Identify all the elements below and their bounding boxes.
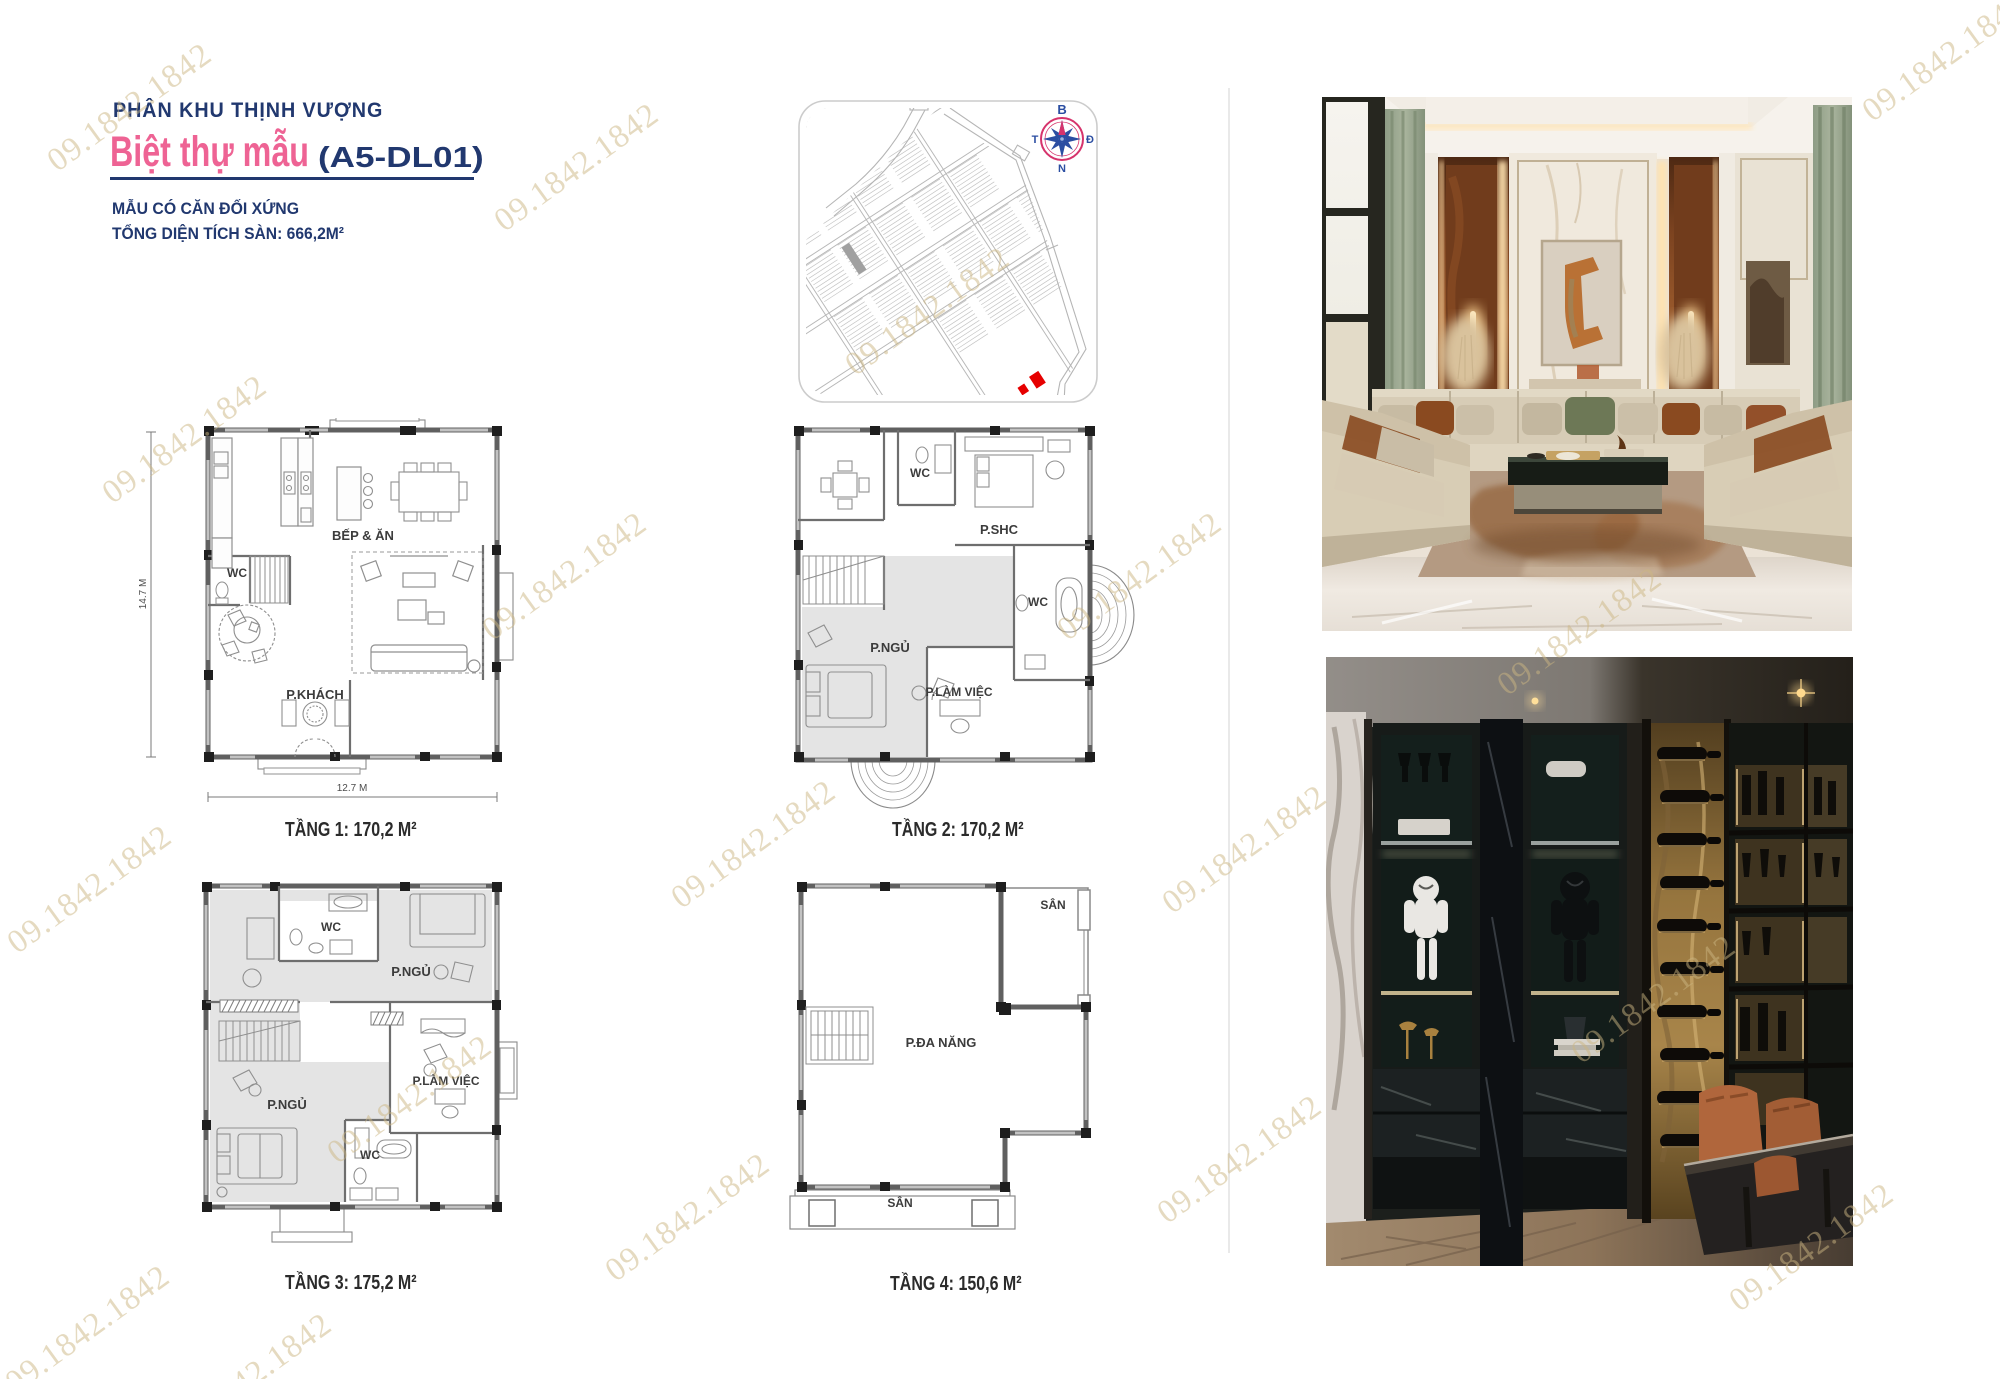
svg-text:WC: WC [1028,595,1048,609]
svg-text:WC: WC [910,466,930,480]
svg-text:12.7 M: 12.7 M [337,783,368,794]
svg-text:P.ĐA NĂNG: P.ĐA NĂNG [906,1035,977,1050]
svg-text:P.NGỦ: P.NGỦ [391,964,431,979]
svg-text:BẾP & ĂN: BẾP & ĂN [332,528,394,543]
svg-text:N: N [1058,163,1066,175]
svg-text:P.NGỦ: P.NGỦ [870,640,910,655]
svg-text:Đ: Đ [1086,134,1094,146]
svg-text:WC: WC [227,566,247,580]
svg-text:P.NGỦ: P.NGỦ [267,1097,307,1112]
svg-text:P.KHÁCH: P.KHÁCH [286,687,344,702]
svg-text:P.LÀM VIỆC: P.LÀM VIỆC [925,684,992,699]
svg-text:SÂN: SÂN [1040,897,1065,912]
svg-text:SÂN: SÂN [887,1195,912,1210]
svg-text:B: B [1057,102,1066,117]
svg-text:T: T [1032,134,1039,146]
svg-text:14.7 M: 14.7 M [138,579,149,610]
svg-text:WC: WC [321,920,341,934]
svg-text:P.SHC: P.SHC [980,522,1019,537]
